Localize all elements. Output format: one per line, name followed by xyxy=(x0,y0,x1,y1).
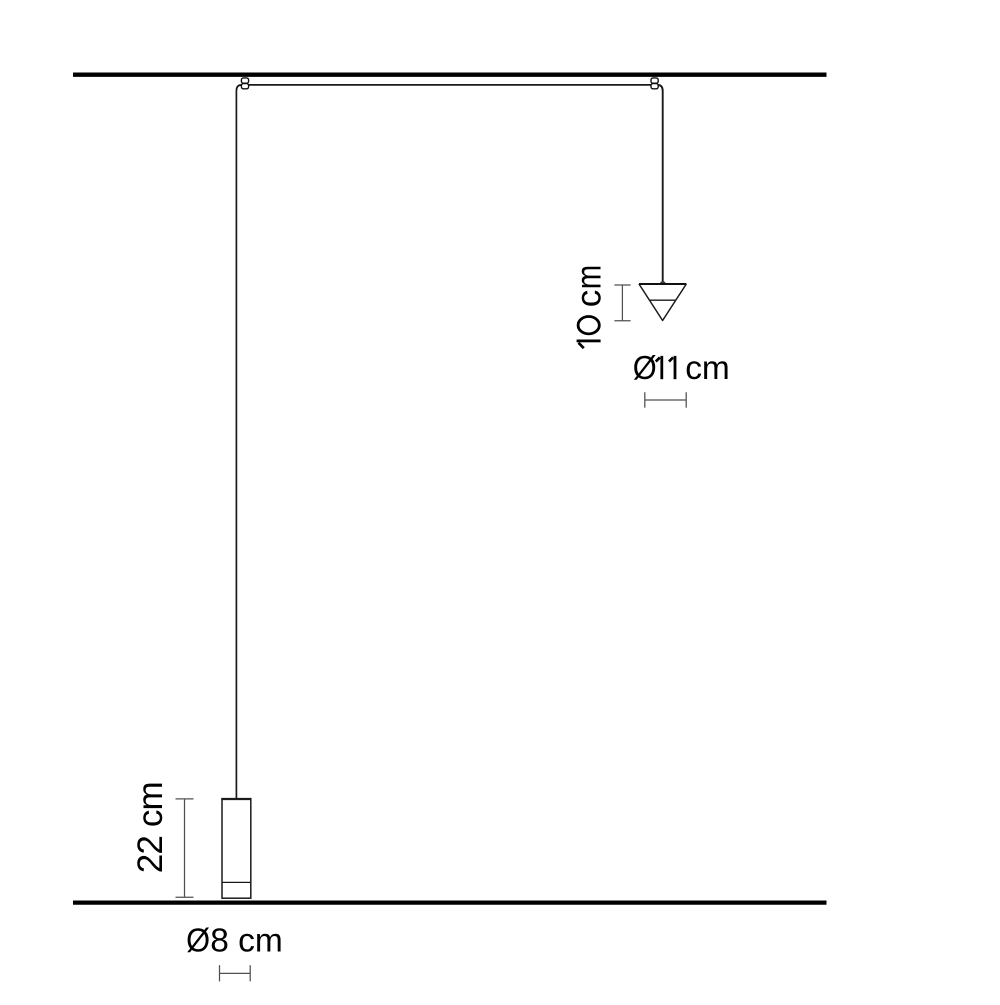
svg-text:22 cm: 22 cm xyxy=(131,781,170,873)
svg-text:c: c xyxy=(570,290,609,308)
svg-text:Ø: Ø xyxy=(186,921,210,958)
svg-text:Ø: Ø xyxy=(633,349,657,386)
svg-text:cm: cm xyxy=(685,350,730,387)
svg-text:8 cm: 8 cm xyxy=(210,922,283,959)
svg-text:m: m xyxy=(569,265,608,289)
